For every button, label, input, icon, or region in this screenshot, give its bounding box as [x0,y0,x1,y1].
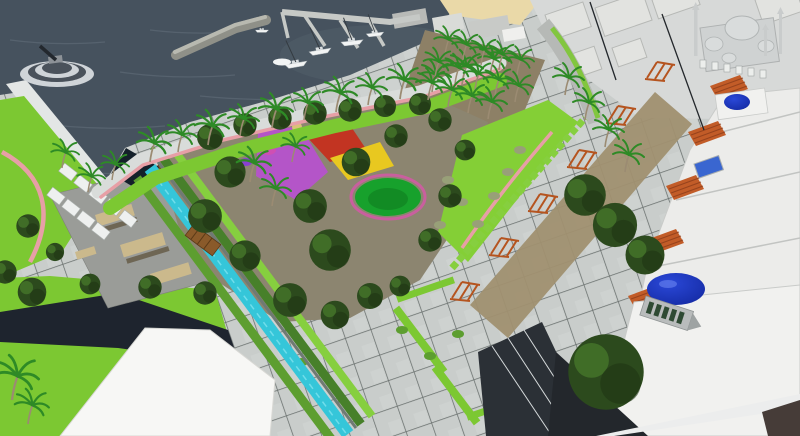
scene-svg [0,0,800,436]
mosque-main-dome [725,16,759,40]
lawn-circle [351,175,425,219]
motorboat [273,59,291,66]
render-canvas [0,0,800,436]
big-tree [568,334,643,409]
